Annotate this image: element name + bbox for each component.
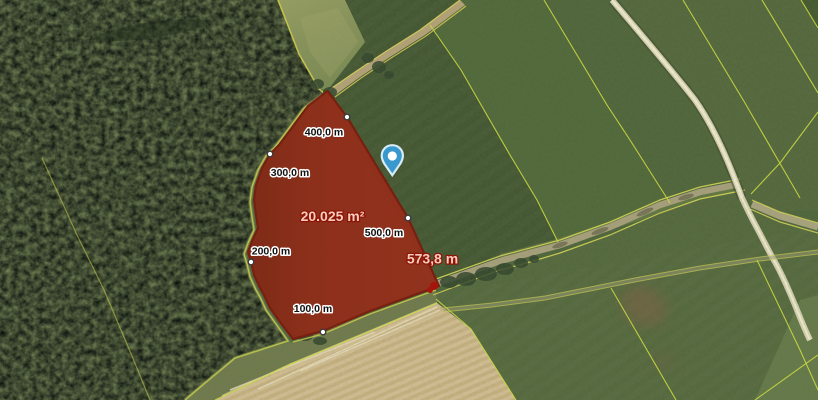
svg-text:500,0 m: 500,0 m	[365, 227, 404, 239]
svg-text:400,0 m: 400,0 m	[305, 127, 344, 139]
svg-text:573,8 m: 573,8 m	[407, 251, 458, 267]
svg-text:300,0 m: 300,0 m	[271, 167, 310, 179]
svg-text:20.025 m²: 20.025 m²	[301, 208, 365, 224]
svg-text:100,0 m: 100,0 m	[294, 303, 333, 315]
svg-text:200,0 m: 200,0 m	[252, 246, 291, 258]
